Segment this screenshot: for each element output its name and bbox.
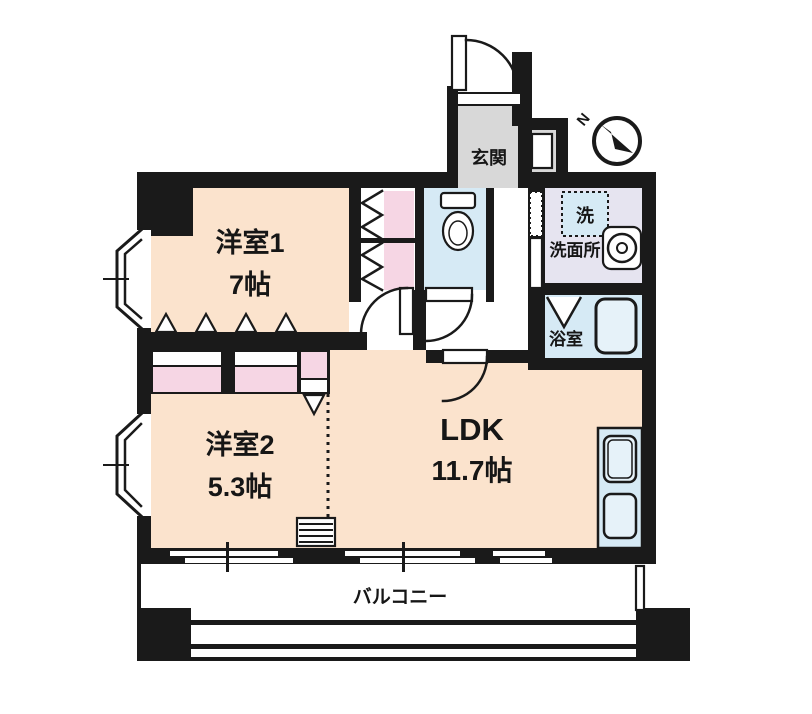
balcony-block-right: [636, 608, 690, 660]
washroom-slide-leaf: [530, 238, 542, 288]
room2-size-label: 5.3帖: [208, 472, 273, 502]
balcony-bottom-edge: [137, 657, 690, 661]
hallway-floor: [494, 188, 528, 302]
room1-door-leaf: [400, 288, 413, 334]
vestibule-floor: [424, 302, 528, 350]
washroom-label: 洗面所: [550, 240, 601, 260]
room1-size-label: 7帖: [229, 270, 271, 300]
wall-washroom-bath: [545, 283, 642, 295]
kitchen-stove: [604, 494, 636, 538]
ldk-door-leaf: [443, 350, 487, 363]
room1-closet-lower: [384, 243, 414, 290]
wall-entrance-left: [447, 86, 458, 188]
toilet-tank: [441, 193, 475, 208]
closet2-interior: [235, 367, 297, 392]
ldk-size-label: 11.7帖: [432, 455, 513, 486]
balcony-block-left: [137, 608, 191, 660]
wall-top-right: [518, 172, 656, 188]
wall-right: [642, 172, 656, 564]
room2-name-label: 洋室2: [205, 429, 274, 460]
closet1-door-strip: [153, 352, 221, 365]
balcony-rail-1: [191, 620, 636, 625]
balcony-label: バルコニー: [353, 586, 448, 608]
wall-toilet-corner: [413, 290, 426, 302]
small-window-pane-1: [493, 551, 545, 556]
ldk-name-label: LDK: [440, 412, 504, 447]
entrance-door-leaf: [452, 36, 466, 90]
bathtub: [596, 299, 636, 353]
closet-divider: [361, 238, 415, 243]
wall-closet-toilet: [415, 188, 424, 290]
window-mullion-1: [226, 542, 229, 572]
washer-label: 洗: [576, 205, 594, 226]
basin-drain: [617, 243, 627, 253]
room2-window-pane-1: [170, 551, 278, 556]
entrance-floor: [458, 92, 520, 188]
washroom-slide-track: [530, 192, 542, 236]
wall-toilet-hall: [486, 188, 494, 302]
wall-bath-ldk: [528, 358, 642, 370]
wall-ldk-door-right: [487, 350, 530, 363]
window-mullion-2: [402, 542, 405, 572]
wall-room1-bottom: [137, 332, 367, 350]
wall-vestibule-left: [413, 302, 426, 350]
wall-room1-closet: [349, 188, 361, 302]
wall-entrance-step-block: [512, 52, 532, 126]
wall-corner-block: [137, 172, 193, 236]
ldk-window-pane-2: [360, 558, 475, 563]
bathroom-label: 浴室: [549, 329, 583, 349]
room2-window-pane-2: [185, 558, 293, 563]
balcony-partition: [636, 566, 644, 610]
floor-plan-page: N 洋室1 7帖 洋室2 5.3帖 LDK 11.7帖 玄関 洗 洗面所 浴室 …: [0, 0, 812, 714]
bay1-opening: [137, 230, 151, 328]
small-window-pane-2: [500, 558, 552, 563]
wall-entrance-ext-right: [556, 118, 568, 188]
closet1-interior: [153, 367, 221, 392]
balcony-rail-2: [191, 644, 636, 649]
room1-closet-upper: [384, 191, 414, 238]
closet3-door-strip: [301, 380, 327, 392]
shoe-cabinet: [532, 134, 552, 168]
toilet-door-leaf: [426, 288, 472, 301]
floor-plan: N 洋室1 7帖 洋室2 5.3帖 LDK 11.7帖 玄関 洗 洗面所 浴室 …: [0, 0, 812, 714]
room1-name-label: 洋室1: [215, 227, 284, 258]
entrance-label: 玄関: [471, 147, 507, 168]
closet2-door-strip: [235, 352, 297, 365]
wall-ldk-door-left: [426, 350, 443, 363]
closet3-interior: [301, 352, 327, 378]
bay2-opening: [137, 414, 151, 516]
